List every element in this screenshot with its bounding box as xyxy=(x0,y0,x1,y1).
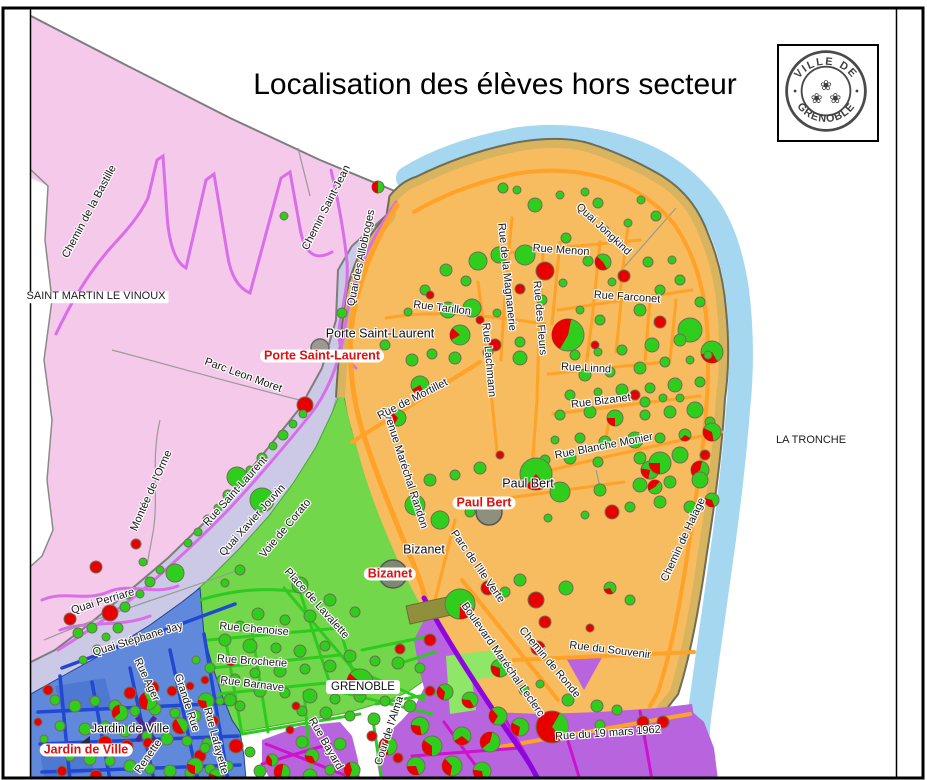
student-marker xyxy=(325,765,335,775)
student-marker xyxy=(271,643,281,653)
student-marker xyxy=(640,410,650,420)
student-marker xyxy=(217,675,227,685)
student-marker xyxy=(303,689,317,703)
student-marker xyxy=(393,753,403,763)
student-marker xyxy=(519,685,529,695)
student-marker xyxy=(254,765,266,777)
student-marker xyxy=(294,645,306,657)
student-marker xyxy=(221,579,229,587)
student-marker xyxy=(223,490,233,500)
school-marker-bizanet[interactable] xyxy=(379,560,407,588)
student-marker xyxy=(561,233,571,243)
student-marker xyxy=(280,615,290,625)
student-marker xyxy=(576,306,584,314)
student-marker xyxy=(556,191,564,199)
student-marker xyxy=(330,694,340,704)
student-marker xyxy=(226,656,236,666)
student-marker xyxy=(192,656,200,664)
student-marker xyxy=(704,351,712,359)
student-marker xyxy=(672,447,688,463)
student-marker xyxy=(113,623,123,633)
student-marker xyxy=(498,183,508,193)
student-marker xyxy=(424,474,436,486)
student-marker xyxy=(536,680,544,688)
student-marker xyxy=(593,457,603,467)
student-marker xyxy=(130,706,140,716)
student-marker xyxy=(230,674,240,684)
student-marker xyxy=(586,624,594,632)
student-marker xyxy=(44,745,56,757)
student-marker xyxy=(463,299,481,317)
student-marker xyxy=(627,432,643,448)
student-marker xyxy=(536,262,554,280)
rose-icon: ❀ xyxy=(829,90,841,106)
student-marker xyxy=(634,362,646,374)
student-marker xyxy=(668,256,676,264)
student-marker xyxy=(634,304,646,316)
student-marker xyxy=(426,291,434,299)
student-marker xyxy=(424,634,436,646)
student-marker xyxy=(105,756,115,766)
student-marker xyxy=(528,198,542,212)
student-marker xyxy=(40,735,48,743)
student-marker xyxy=(79,656,87,664)
student-marker xyxy=(87,623,97,633)
student-marker xyxy=(102,605,118,621)
student-marker xyxy=(280,212,288,220)
student-marker xyxy=(292,577,308,593)
city-seal-icon: VILLE DE GRENOBLE ❀ ❀ ❀ xyxy=(779,46,873,136)
student-marker xyxy=(269,442,277,450)
student-marker xyxy=(380,696,390,706)
student-marker xyxy=(637,196,645,204)
student-marker xyxy=(686,356,694,364)
student-marker xyxy=(320,707,332,719)
student-marker xyxy=(491,247,507,263)
student-marker xyxy=(528,592,544,608)
student-marker xyxy=(100,721,110,731)
student-marker xyxy=(695,297,705,307)
student-marker xyxy=(595,720,605,730)
student-marker xyxy=(654,496,666,508)
student-marker xyxy=(324,660,336,672)
student-marker xyxy=(145,764,155,774)
student-marker xyxy=(55,721,65,731)
student-marker xyxy=(209,716,219,726)
student-marker xyxy=(476,316,484,324)
student-marker xyxy=(684,501,696,513)
student-marker xyxy=(425,686,435,696)
student-marker xyxy=(404,308,412,316)
student-marker xyxy=(550,482,570,502)
student-marker xyxy=(637,716,649,728)
student-marker xyxy=(124,591,132,599)
student-marker xyxy=(461,276,471,286)
student-marker xyxy=(664,406,676,418)
student-marker xyxy=(219,634,231,646)
student-marker xyxy=(440,302,456,318)
student-marker xyxy=(513,186,521,194)
student-marker xyxy=(625,595,635,605)
student-marker xyxy=(50,695,60,705)
map-document: Chemin de la BastilleSAINT MARTIN LE VIN… xyxy=(0,0,927,780)
student-marker xyxy=(205,663,215,673)
student-marker xyxy=(250,488,274,512)
city-logo: VILLE DE GRENOBLE ❀ ❀ ❀ xyxy=(777,44,879,142)
student-marker xyxy=(300,664,310,674)
student-marker xyxy=(235,621,245,631)
student-marker xyxy=(350,607,360,617)
student-marker xyxy=(625,502,635,512)
student-marker xyxy=(182,736,192,746)
student-marker xyxy=(227,467,247,487)
student-marker xyxy=(500,587,510,597)
student-marker xyxy=(69,700,81,712)
student-marker xyxy=(450,470,460,480)
student-marker xyxy=(660,357,670,367)
student-marker xyxy=(655,433,665,443)
student-marker xyxy=(630,390,640,400)
student-marker xyxy=(235,701,245,711)
student-marker xyxy=(102,633,110,641)
student-marker xyxy=(687,402,703,418)
student-marker xyxy=(395,644,405,654)
student-marker xyxy=(194,528,202,536)
student-marker xyxy=(254,685,266,697)
student-marker xyxy=(617,345,627,355)
student-marker xyxy=(493,309,501,317)
student-marker xyxy=(664,476,676,488)
student-marker xyxy=(216,697,224,705)
student-marker xyxy=(675,275,685,285)
student-marker xyxy=(469,252,487,270)
student-marker xyxy=(201,676,209,684)
student-marker xyxy=(243,639,257,653)
student-marker xyxy=(245,747,255,757)
student-marker xyxy=(695,377,705,387)
student-marker xyxy=(645,383,655,393)
student-marker xyxy=(186,682,194,690)
student-marker xyxy=(189,710,201,722)
student-marker xyxy=(427,349,437,359)
student-marker xyxy=(599,436,611,448)
student-marker xyxy=(624,219,632,227)
student-marker xyxy=(43,685,53,695)
student-marker xyxy=(405,495,425,515)
student-marker xyxy=(235,565,245,575)
student-marker xyxy=(334,738,346,750)
student-marker xyxy=(90,696,100,706)
student-marker xyxy=(655,285,665,295)
student-marker xyxy=(224,694,236,706)
student-marker xyxy=(214,504,222,512)
student-marker xyxy=(544,514,552,522)
student-marker xyxy=(676,394,684,402)
student-marker xyxy=(659,394,667,402)
student-marker xyxy=(515,245,535,265)
student-marker xyxy=(551,436,559,444)
student-marker xyxy=(640,397,650,407)
student-marker xyxy=(304,610,316,622)
student-marker xyxy=(515,284,525,294)
student-marker xyxy=(167,686,177,696)
student-marker xyxy=(368,713,380,725)
student-marker xyxy=(98,736,112,750)
student-marker xyxy=(296,736,308,748)
student-marker xyxy=(121,740,133,752)
student-marker xyxy=(392,657,404,669)
student-marker xyxy=(584,406,596,418)
student-marker xyxy=(634,452,646,464)
student-marker xyxy=(73,628,83,638)
student-marker xyxy=(591,341,599,349)
student-marker xyxy=(184,539,192,547)
student-marker xyxy=(562,694,574,706)
student-marker xyxy=(674,334,686,346)
student-marker xyxy=(591,700,603,712)
student-marker xyxy=(324,594,336,606)
student-marker xyxy=(513,351,527,365)
student-marker xyxy=(595,315,605,325)
student-marker xyxy=(643,257,653,267)
student-marker xyxy=(601,226,609,234)
student-marker xyxy=(124,687,136,699)
student-marker xyxy=(131,539,141,549)
student-marker xyxy=(257,453,267,463)
student-marker xyxy=(404,700,416,712)
student-marker xyxy=(559,581,573,595)
student-marker xyxy=(465,507,475,517)
page-title: Localisation des élèves hors secteur xyxy=(253,68,737,102)
student-marker xyxy=(657,716,669,728)
student-marker xyxy=(139,558,147,566)
student-marker xyxy=(274,665,286,677)
student-marker xyxy=(581,188,589,196)
student-marker xyxy=(119,725,131,737)
student-marker xyxy=(608,278,616,286)
school-marker-paul-bert[interactable] xyxy=(476,499,502,525)
student-marker xyxy=(537,295,547,305)
student-marker xyxy=(65,751,75,761)
student-marker xyxy=(483,347,493,357)
student-marker xyxy=(252,608,264,620)
student-marker xyxy=(651,211,661,221)
student-marker xyxy=(415,663,425,673)
student-marker xyxy=(700,450,710,460)
student-marker xyxy=(314,354,322,362)
student-marker xyxy=(565,390,575,400)
student-marker xyxy=(34,718,42,726)
student-marker xyxy=(289,420,297,428)
student-marker xyxy=(668,378,682,392)
student-marker xyxy=(57,766,67,776)
student-marker xyxy=(564,452,576,464)
student-marker xyxy=(616,384,628,396)
student-marker xyxy=(515,337,525,347)
student-marker xyxy=(575,433,585,443)
student-marker xyxy=(120,602,130,612)
student-marker xyxy=(164,765,176,777)
student-marker xyxy=(367,731,377,741)
student-marker xyxy=(145,577,155,587)
student-marker xyxy=(370,656,380,666)
student-marker xyxy=(337,308,347,318)
student-marker xyxy=(246,466,254,474)
student-marker xyxy=(280,688,290,698)
student-marker xyxy=(380,340,390,350)
student-marker xyxy=(579,369,591,381)
student-marker xyxy=(200,743,210,753)
student-marker xyxy=(124,760,136,772)
student-marker xyxy=(654,316,666,328)
student-marker xyxy=(166,564,184,582)
student-marker xyxy=(583,256,593,266)
student-marker xyxy=(292,702,300,710)
student-marker xyxy=(605,367,615,377)
student-marker xyxy=(594,388,602,396)
student-marker xyxy=(79,723,91,735)
student-marker xyxy=(92,645,102,655)
student-marker xyxy=(594,484,606,496)
student-marker xyxy=(84,753,96,765)
student-marker xyxy=(449,352,461,364)
student-marker xyxy=(496,451,504,459)
student-marker xyxy=(539,616,551,628)
student-marker xyxy=(531,641,545,655)
student-marker xyxy=(286,726,294,734)
student-marker xyxy=(481,581,495,595)
student-marker xyxy=(612,705,622,715)
student-marker xyxy=(593,198,603,208)
student-marker xyxy=(581,511,589,519)
student-marker xyxy=(90,561,102,573)
student-marker xyxy=(223,761,233,771)
student-marker xyxy=(570,350,580,360)
student-marker xyxy=(320,641,330,651)
student-marker xyxy=(555,410,565,420)
student-marker xyxy=(514,574,526,586)
student-marker xyxy=(345,711,355,721)
student-marker xyxy=(559,279,567,287)
student-marker xyxy=(278,430,288,440)
student-marker xyxy=(64,613,76,625)
student-marker xyxy=(633,478,647,492)
student-marker xyxy=(605,505,619,519)
student-marker xyxy=(618,270,630,282)
student-marker xyxy=(692,472,708,488)
student-marker xyxy=(170,708,180,718)
student-marker xyxy=(161,733,173,745)
student-marker xyxy=(299,410,307,418)
student-marker xyxy=(344,650,356,662)
student-marker xyxy=(645,338,659,352)
student-marker xyxy=(136,590,144,598)
student-marker xyxy=(250,668,260,678)
student-marker xyxy=(474,462,486,474)
student-marker xyxy=(229,739,243,753)
student-marker xyxy=(406,354,418,366)
student-marker xyxy=(440,264,452,276)
student-marker xyxy=(156,566,164,574)
student-marker xyxy=(203,515,213,525)
student-marker xyxy=(431,511,449,529)
rose-icon: ❀ xyxy=(811,90,823,106)
student-marker xyxy=(143,738,153,748)
